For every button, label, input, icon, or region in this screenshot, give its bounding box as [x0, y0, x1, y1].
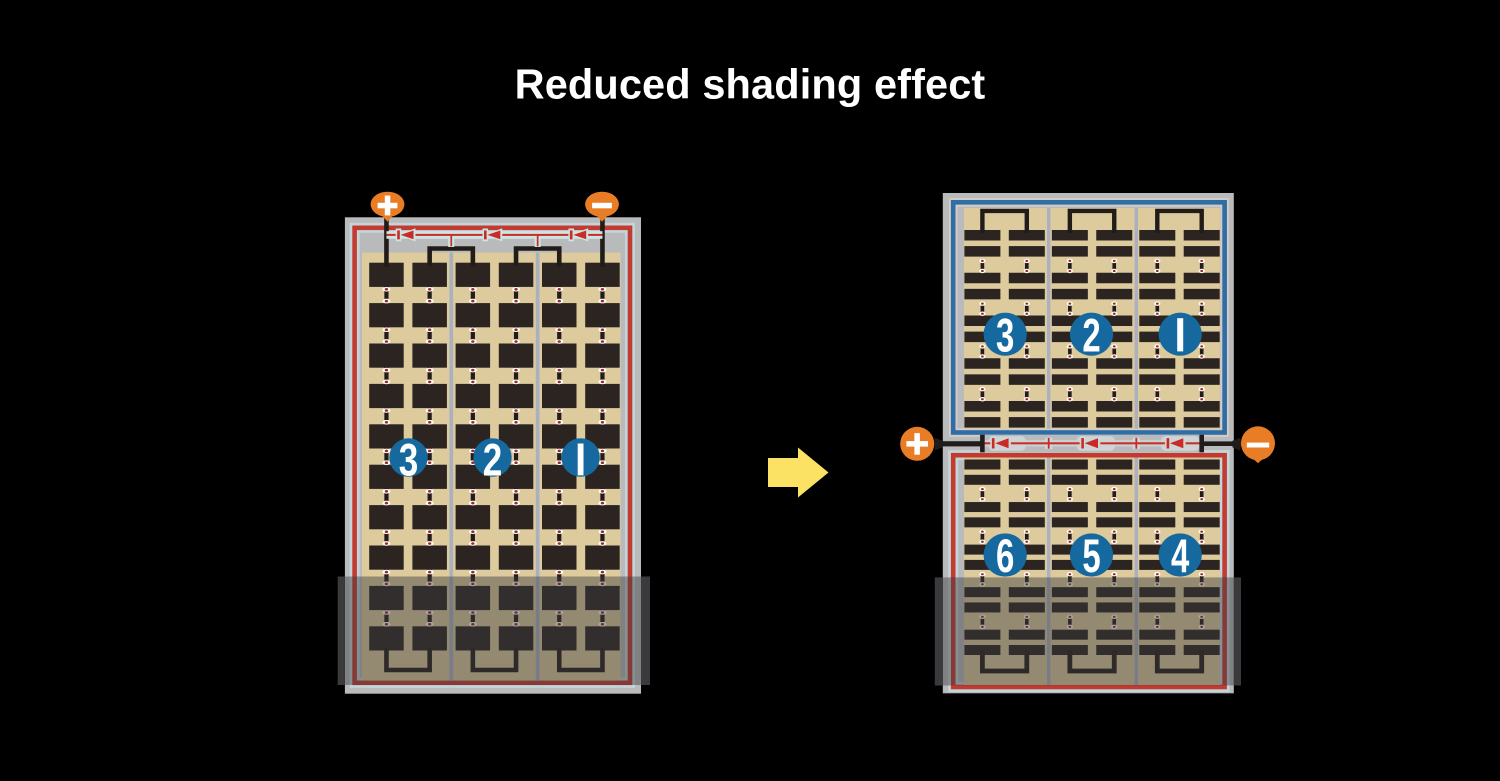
svg-text:3: 3	[996, 309, 1014, 362]
svg-text:4: 4	[1171, 529, 1190, 582]
svg-text:2: 2	[483, 434, 503, 485]
svg-text:5: 5	[1082, 529, 1100, 582]
svg-text:Reduced shading effect: Reduced shading effect	[515, 61, 986, 108]
svg-text:3: 3	[399, 434, 419, 485]
svg-text:2: 2	[1082, 309, 1100, 362]
svg-text:6: 6	[996, 529, 1014, 582]
